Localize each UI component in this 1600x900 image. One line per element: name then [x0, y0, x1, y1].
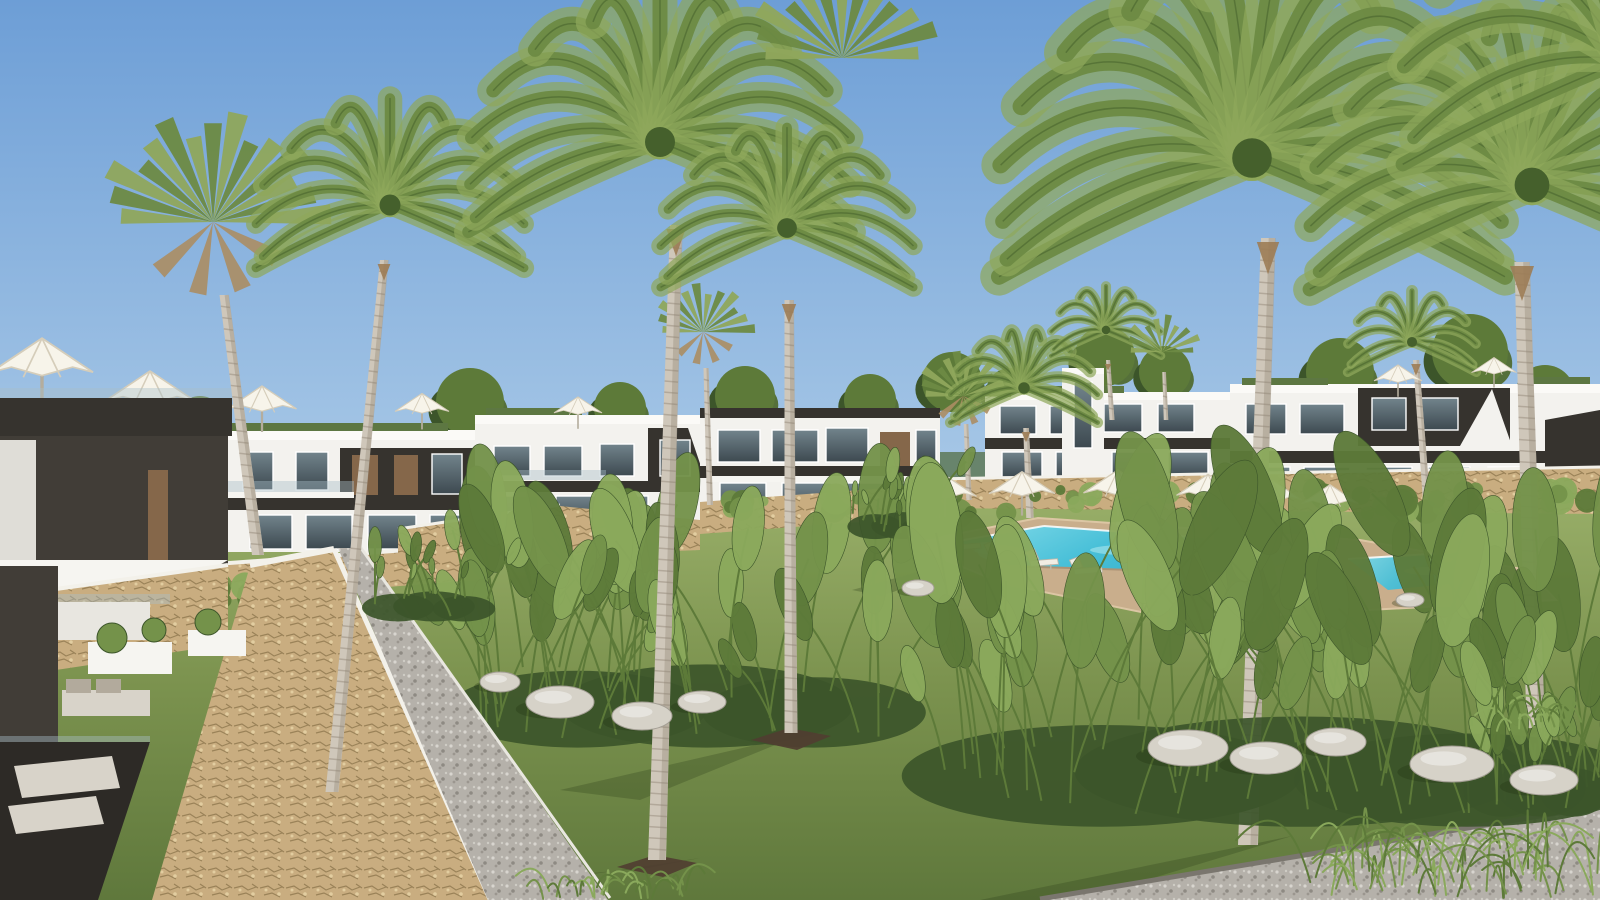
boulder-highlight	[906, 582, 924, 588]
window	[306, 515, 352, 549]
roof-hedge	[232, 423, 448, 431]
boulder-highlight	[684, 694, 710, 703]
roof-hedge	[1242, 378, 1328, 385]
boulder-highlight	[1519, 770, 1556, 782]
shrub	[1068, 496, 1085, 513]
boulder-highlight	[620, 706, 653, 717]
window	[826, 428, 868, 462]
fascia	[218, 430, 475, 440]
crown-center	[1018, 382, 1030, 394]
boulder-highlight	[485, 675, 507, 683]
window	[1372, 398, 1406, 430]
window	[1000, 406, 1036, 434]
balcony-slab	[188, 630, 246, 656]
window	[718, 430, 760, 462]
boulder-highlight	[1400, 595, 1415, 601]
facade-shaded	[0, 440, 36, 562]
wood-slat-panel	[148, 470, 168, 562]
box-bush	[142, 618, 166, 642]
window	[1420, 398, 1458, 430]
crown-center	[1102, 326, 1111, 335]
boulder-highlight	[1314, 732, 1347, 743]
glass-railing	[0, 388, 232, 398]
leaf-blade	[862, 560, 892, 642]
window	[1300, 404, 1344, 434]
dark-cladding	[0, 398, 232, 436]
dark-cladding	[985, 438, 1230, 449]
dark-cladding	[1230, 451, 1600, 463]
architectural-render	[0, 0, 1600, 900]
sofa-cushion	[66, 679, 91, 693]
dark-cladding	[700, 408, 940, 418]
leaf-blade	[896, 500, 902, 515]
box-bush	[97, 623, 127, 653]
crown-center	[1515, 168, 1550, 203]
crown-center	[777, 218, 797, 238]
box-bush	[195, 609, 221, 635]
leaf-blade	[368, 527, 381, 563]
sofa-cushion	[96, 679, 121, 693]
shrub	[1055, 485, 1065, 495]
outdoor-sofa	[62, 690, 150, 716]
crown-center	[380, 195, 401, 216]
boulder-highlight	[1239, 747, 1279, 760]
wood-slat-panel	[394, 455, 418, 495]
dark-cladding	[1545, 410, 1600, 472]
crown-center	[1407, 337, 1417, 347]
boulder-highlight	[1421, 751, 1467, 765]
window	[432, 454, 462, 494]
boulder-highlight	[1158, 735, 1202, 749]
crown-center	[1232, 138, 1272, 178]
crown-center	[645, 127, 675, 157]
scene-svg	[0, 0, 1600, 900]
boulder-highlight	[535, 691, 572, 704]
